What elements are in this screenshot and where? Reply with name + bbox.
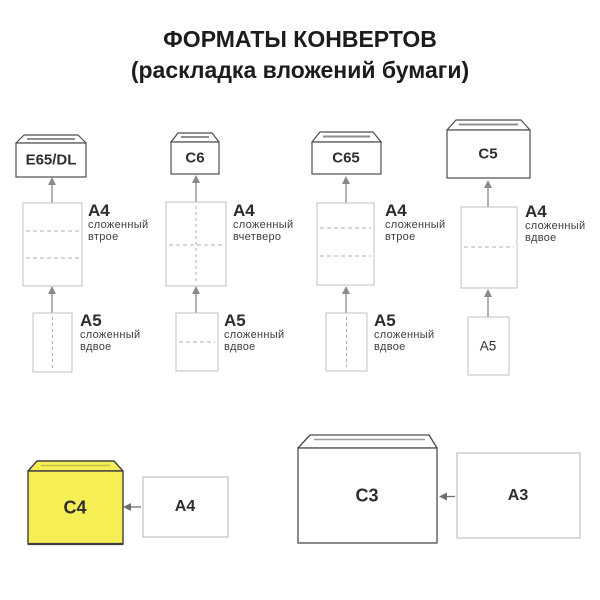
- a5-label-col1: A5: [80, 313, 102, 328]
- a4-sheet-col3: [317, 203, 374, 285]
- arrow-left-icon: [439, 493, 455, 501]
- envelope-c4-label: C4: [63, 498, 86, 519]
- envelope-c6-label: C6: [185, 150, 204, 167]
- diagram-shapes: [0, 0, 600, 600]
- arrow-up-icon: [342, 176, 350, 203]
- a5-label-col2: A5: [224, 313, 246, 328]
- a4-sheet-col4: [461, 207, 517, 288]
- a5-sheet-col3: [326, 313, 367, 371]
- a4-desc-col2: сложенный вчетверо: [233, 219, 293, 243]
- a3-sheet-bottom-label: A3: [508, 487, 528, 505]
- a5-desc-col1: сложенный вдвое: [80, 329, 140, 353]
- a4-desc-col3: сложенный втрое: [385, 219, 445, 243]
- envelope-c3-label: C3: [355, 486, 378, 507]
- arrow-up-icon: [342, 286, 350, 313]
- a4-label-col2: A4: [233, 203, 255, 218]
- a5-desc-col2: сложенный вдвое: [224, 329, 284, 353]
- a4-desc-col4: сложенный вдвое: [525, 220, 585, 244]
- a5-sheet-col1: [33, 313, 72, 372]
- diagram-canvas: ФОРМАТЫ КОНВЕРТОВ (раскладка вложений бу…: [0, 0, 600, 600]
- arrow-left-icon: [123, 503, 141, 511]
- a5-sheet-col4-label: A5: [480, 339, 497, 354]
- arrow-up-icon: [484, 180, 492, 207]
- envelope-flap: [298, 435, 437, 448]
- a4-sheet-bottom-label: A4: [175, 498, 195, 516]
- arrow-up-icon: [48, 286, 56, 313]
- arrow-up-icon: [484, 289, 492, 317]
- arrow-up-icon: [192, 286, 200, 313]
- a4-label-col3: A4: [385, 203, 407, 218]
- arrow-up-icon: [192, 175, 200, 202]
- a4-desc-col1: сложенный втрое: [88, 219, 148, 243]
- envelope-c65-label: C65: [332, 150, 360, 167]
- arrow-up-icon: [48, 177, 56, 203]
- a4-sheet-col1: [23, 203, 82, 286]
- a5-sheet-col2: [176, 313, 218, 371]
- a4-label-col1: A4: [88, 203, 110, 218]
- envelope-e65dl-label: E65/DL: [26, 152, 77, 169]
- a4-label-col4: A4: [525, 204, 547, 219]
- a5-desc-col3: сложенный вдвое: [374, 329, 434, 353]
- a5-label-col3: A5: [374, 313, 396, 328]
- a4-sheet-col2: [166, 202, 226, 286]
- envelope-c5-label: C5: [478, 146, 497, 163]
